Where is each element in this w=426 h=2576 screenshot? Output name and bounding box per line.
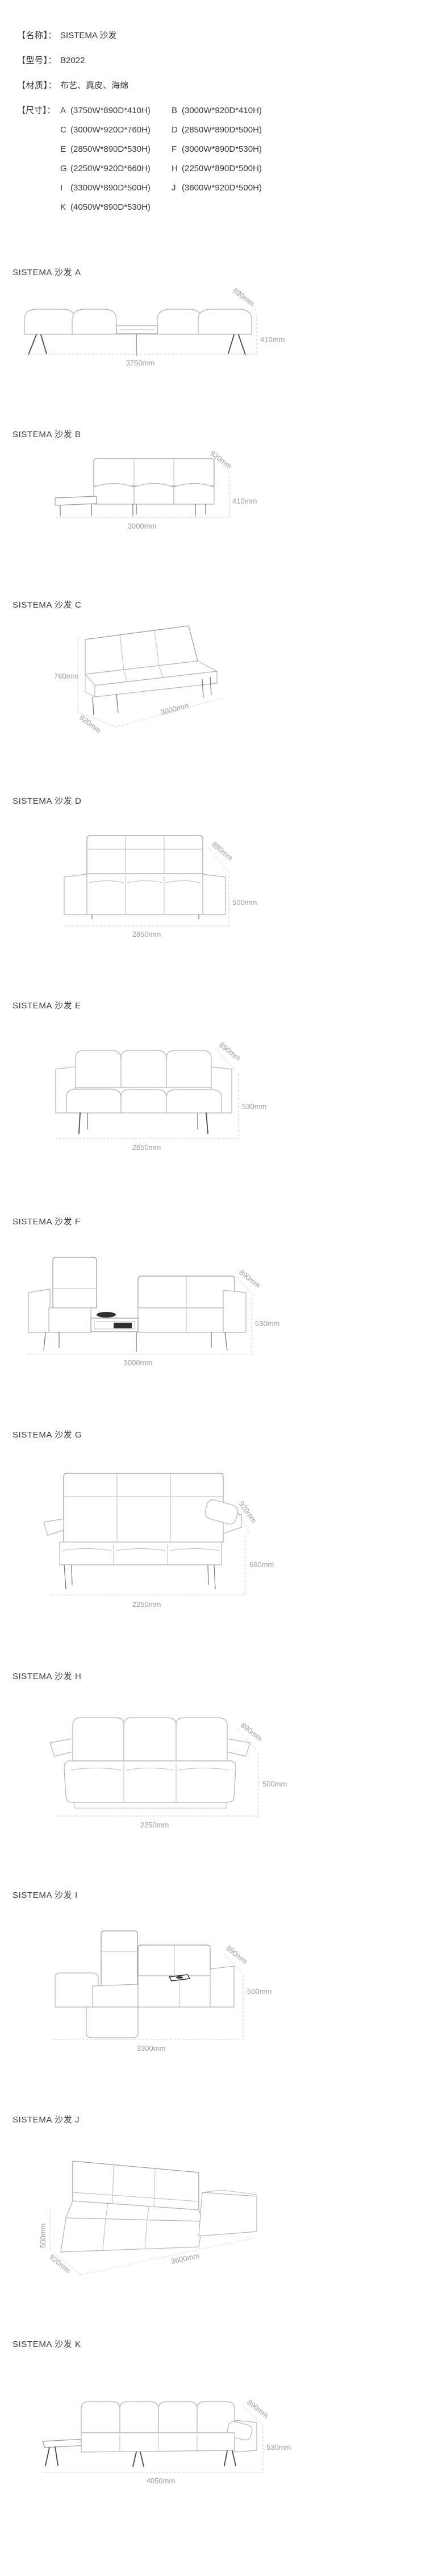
size-item-f: F(3000W*890D*530H) — [172, 145, 262, 153]
depth-dim-label: 890mm — [245, 2398, 270, 2420]
sofa-j-drawing: 500mm 920mm 3600mm — [0, 2109, 426, 2285]
depth-dim-label: 890mm — [239, 1721, 264, 1743]
sofa-i-drawing: 890mm 500mm 3300mm — [0, 1884, 426, 2066]
width-dim-label: 3300mm — [137, 2044, 166, 2053]
section-sofa-h: SISTEMA 沙发 H 890mm 500mm 2250mm — [0, 1665, 426, 1844]
sofa-b-line-art — [55, 459, 214, 516]
depth-dim-label: 890mm — [218, 1041, 242, 1063]
sofa-a-line-art — [24, 309, 252, 356]
depth-dim-label: 890mm — [224, 1944, 249, 1966]
height-dim-label: 410mm — [232, 497, 257, 505]
sofa-k-line-art — [43, 2402, 257, 2466]
height-dim-label: 530mm — [242, 1102, 266, 1111]
section-sofa-b: SISTEMA 沙发 B 920mm 410mm 3000mm — [0, 423, 426, 540]
model-value: B2022 — [60, 56, 85, 65]
width-dim-label: 2850mm — [132, 1143, 161, 1152]
spacer-2 — [17, 145, 60, 153]
material-label: 【材质】 — [17, 81, 48, 90]
spacer-3 — [17, 164, 60, 173]
section-sofa-f: SISTEMA 沙发 F 890mm 530mm 3000mm — [0, 1211, 426, 1378]
height-dim-label: 530mm — [255, 1319, 279, 1328]
width-dim-label: 3000mm — [160, 701, 190, 717]
section-sofa-g: SISTEMA 沙发 G 920mm 660mm 2250mm — [0, 1424, 426, 1623]
spec-header: 【名称】：SISTEMA 沙发 【型号】：B2022 【材质】：布艺、真皮、海绵… — [17, 31, 262, 211]
depth-dim-label: 920mm — [48, 2253, 72, 2275]
name-label: 【名称】 — [17, 31, 48, 40]
height-dim-label: 410mm — [260, 335, 285, 344]
size-item-e: E(2850W*890D*530H) — [60, 145, 172, 153]
width-dim-label: 2250mm — [132, 1600, 161, 1609]
depth-dim-label: 890mm — [210, 840, 235, 862]
height-dim-label: 760mm — [54, 672, 78, 680]
size-item-k: K(4050W*890D*530H) — [60, 203, 172, 211]
size-item-b: B(3000W*920D*410H) — [172, 106, 262, 115]
height-dim-label: 500mm — [232, 898, 257, 907]
size-item-i: I(3300W*890D*500H) — [60, 184, 172, 192]
sofa-d-line-art — [64, 836, 225, 919]
width-dim-label: 3750mm — [126, 359, 155, 367]
sofa-d-drawing: 890mm 500mm 2850mm — [0, 790, 426, 952]
section-sofa-a: SISTEMA 沙发 A 890mm 410mm 3750mm — [0, 261, 426, 384]
width-dim-label: 2250mm — [140, 1821, 169, 1829]
height-dim-label: 530mm — [266, 2443, 291, 2452]
material-field: 【材质】：布艺、真皮、海绵 — [17, 81, 262, 90]
height-dim-label: 500mm — [39, 2224, 47, 2248]
height-dim-label: 500mm — [247, 1987, 272, 1996]
depth-dim-label: 920mm — [78, 713, 102, 736]
sofa-a-drawing: 890mm 410mm 3750mm — [0, 261, 426, 381]
sofa-i-line-art — [55, 1931, 234, 2038]
model-field: 【型号】：B2022 — [17, 56, 262, 65]
name-value: SISTEMA 沙发 — [60, 31, 116, 40]
height-dim-label: 500mm — [262, 1780, 287, 1788]
size-item-h: H(2250W*890D*500H) — [172, 164, 262, 173]
width-dim-label: 3000mm — [124, 1358, 153, 1367]
sofa-e-drawing: 890mm 530mm 2850mm — [0, 995, 426, 1160]
section-sofa-c: SISTEMA 沙发 C 760mm 920mm 3000mm — [0, 594, 426, 742]
height-dim-label: 660mm — [249, 1560, 274, 1569]
spacer-4 — [17, 184, 60, 192]
size-list: 【尺寸】： A(3750W*890D*410H) B(3000W*920D*41… — [17, 106, 262, 211]
sofa-c-drawing: 760mm 920mm 3000mm — [0, 594, 426, 739]
sofa-j-line-art — [61, 2161, 257, 2252]
sofa-c-line-art — [85, 626, 217, 715]
size-item-d: D(2850W*890D*500H) — [172, 126, 262, 134]
spacer-5 — [17, 203, 60, 211]
sofa-g-drawing: 920mm 660mm 2250mm — [0, 1424, 426, 1620]
section-sofa-k: SISTEMA 沙发 K 890mm 530mm 4050mm — [0, 2333, 426, 2498]
size-item-c: C(3000W*920D*760H) — [60, 126, 172, 134]
depth-dim-label: 890mm — [237, 1268, 262, 1290]
sofa-e-line-art — [56, 1050, 232, 1133]
size-label: 【尺寸】： — [17, 106, 60, 115]
name-colon: ： — [48, 31, 57, 40]
section-sofa-e: SISTEMA 沙发 E 890mm 530mm 2850mm — [0, 995, 426, 1162]
sofa-g-line-art — [44, 1473, 241, 1589]
section-sofa-d: SISTEMA 沙发 D 890mm 500mm 2850mm — [0, 790, 426, 955]
width-dim-label: 3600mm — [170, 2251, 201, 2266]
sofa-b-drawing: 920mm 410mm 3000mm — [0, 423, 426, 537]
size-item-g: G(2250W*920D*660H) — [60, 164, 172, 173]
section-sofa-i: SISTEMA 沙发 I 890mm 500mm 3300mm — [0, 1884, 426, 2069]
material-colon: ： — [48, 81, 57, 90]
section-sofa-j: SISTEMA 沙发 J 500mm 920mm 3600mm — [0, 2109, 426, 2288]
spacer-1 — [17, 126, 60, 134]
sofa-h-drawing: 890mm 500mm 2250mm — [0, 1665, 426, 1842]
sofa-k-drawing: 890mm 530mm 4050mm — [0, 2333, 426, 2495]
material-value: 布艺、真皮、海绵 — [60, 81, 128, 90]
sofa-f-drawing: 890mm 530mm 3000mm — [0, 1211, 426, 1376]
size-item-j: J(3600W*920D*500H) — [172, 184, 262, 192]
sofa-h-line-art — [50, 1718, 250, 1808]
width-dim-label: 2850mm — [132, 930, 161, 938]
model-colon: ： — [48, 56, 57, 65]
depth-dim-label: 890mm — [231, 286, 256, 308]
width-dim-label: 4050mm — [147, 2477, 176, 2485]
width-dim-label: 3000mm — [128, 522, 157, 530]
sofa-f-line-art — [28, 1257, 246, 1352]
model-label: 【型号】 — [17, 56, 48, 65]
name-field: 【名称】：SISTEMA 沙发 — [17, 31, 262, 40]
size-item-a: A(3750W*890D*410H) — [60, 106, 172, 115]
